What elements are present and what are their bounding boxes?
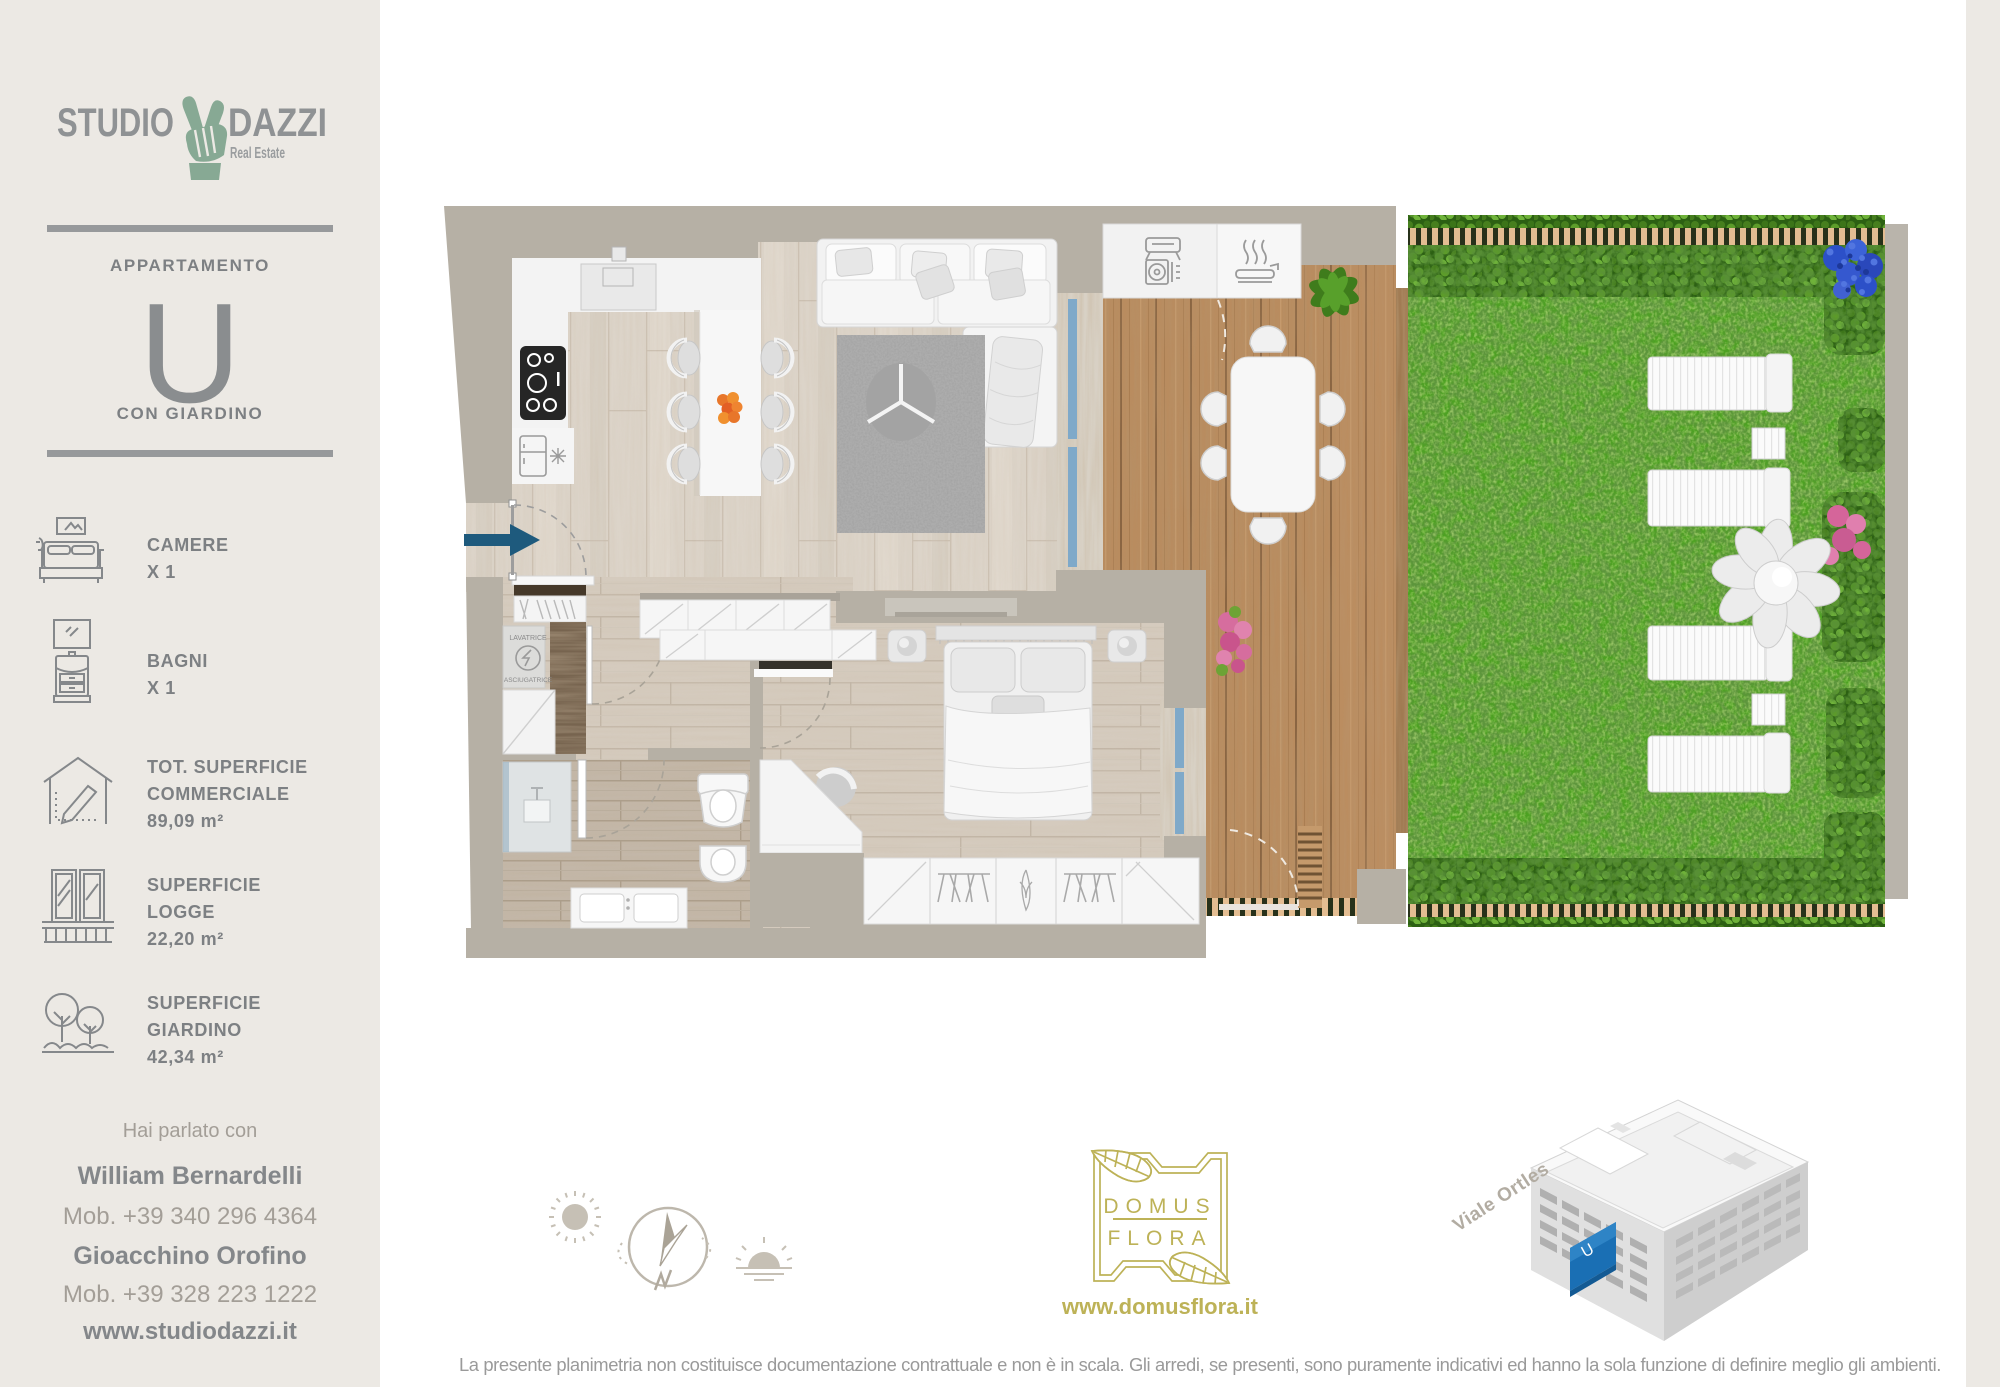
svg-text:DOMUS: DOMUS (1103, 1195, 1216, 1218)
svg-text:www.domusflora.it: www.domusflora.it (1061, 1294, 1259, 1319)
svg-text:FLORA: FLORA (1107, 1227, 1212, 1250)
svg-text:ASCIUGATRICE: ASCIUGATRICE (504, 677, 553, 684)
svg-text:LAVATRICE: LAVATRICE (509, 635, 547, 642)
